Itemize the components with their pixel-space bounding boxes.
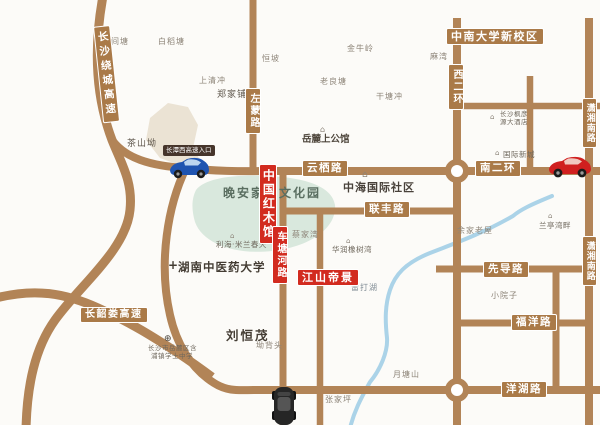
road-label-xiandao: 先导路: [483, 261, 529, 278]
roundabout-yanghu: [448, 381, 466, 399]
road-label-yanghu: 洋湖路: [501, 381, 547, 398]
place-yuetangshan: 月塘山: [393, 370, 420, 379]
poi-lanting-bay: 兰亭湾畔: [539, 222, 571, 231]
place-zhangjiaping: 张家坪: [325, 395, 352, 404]
place-baidaotang: 白稻塘: [158, 37, 185, 46]
poi-tcm-university: 湖南中医药大学: [178, 261, 266, 274]
road-label-csu-new-campus: 中南大学新校区: [446, 28, 544, 45]
place-caijiawan: 蔡家湾: [292, 230, 319, 239]
location-map: 中间塘 白稻塘 上清冲 恒坡 金牛岭 麻湾 老良塘 干塘冲 蔡家湾 雷打湖 余家…: [0, 0, 600, 425]
building-icon: ⌂: [490, 114, 494, 121]
road-ring-expressway: [26, 0, 131, 425]
road-network: [0, 0, 600, 425]
label-jiangshan-dijing: 江山帝景: [297, 269, 359, 286]
place-jinniuling: 金牛岭: [347, 44, 374, 53]
place-hengpo: 恒坡: [262, 54, 280, 63]
poi-zhonghai-intl-community: 中海国际社区: [343, 182, 415, 195]
road-label-lianfeng: 联丰路: [364, 201, 410, 218]
place-gantangchong: 干塘冲: [376, 92, 403, 101]
building-icon: ⌂: [320, 126, 325, 134]
school-icon: ⊕: [164, 334, 172, 344]
road-label-chetanghe: 车塘河路: [272, 226, 288, 284]
building-icon: ⌂: [346, 238, 350, 245]
place-liuhengmao: 刘恒茂: [226, 329, 270, 343]
place-chashanao: 茶山坳: [127, 139, 157, 149]
place-mawan: 麻湾: [430, 52, 448, 61]
poi-school-line2: 浦镇学士中学: [151, 353, 193, 360]
poi-hotel-line2: 源大酒店: [500, 119, 528, 126]
building-icon: ⌂: [362, 171, 368, 180]
map-canvas: [0, 0, 600, 425]
road-label-xiaoxiang-south-south: 潇湘南路: [582, 236, 597, 286]
label-expressway-entrance: 长潭西高速入口: [163, 145, 215, 156]
road-label-yunqi: 云栖路: [302, 160, 348, 177]
building-icon: ⌂: [230, 233, 234, 240]
place-yujialaowu: 余家老屋: [457, 226, 493, 235]
road-label-fuyang: 福洋路: [511, 314, 557, 331]
place-xiaoyuanzi: 小院子: [491, 291, 518, 300]
hill-area: [146, 103, 200, 166]
place-laoliangtang: 老良塘: [320, 77, 347, 86]
road-label-xiaoxiang-south-north: 潇湘南路: [582, 98, 597, 148]
building-icon: ⌂: [495, 150, 499, 157]
roundabout-nanerhuan: [448, 162, 466, 180]
poi-yuelu-mansion: 岳麓上公馆: [302, 135, 350, 146]
road-label-changshaolou-expwy: 长韶娄高速: [80, 307, 148, 323]
road-label-zuomeng: 左蒙路: [245, 88, 261, 134]
place-shangqingchong: 上清冲: [199, 76, 226, 85]
road-label-nanerhuan: 南二环: [475, 160, 521, 177]
poi-intl-new-town: 国际新城: [503, 151, 535, 160]
black-car-icon: [272, 387, 296, 425]
hospital-cross-icon: +: [168, 259, 178, 273]
road-yunqi-nanerhuan: [186, 168, 600, 171]
building-icon: ⌂: [548, 213, 552, 220]
poi-huarun-oak-bay: 华润橡树湾: [332, 246, 372, 255]
road-label-xierhuan: 西二环: [448, 64, 464, 110]
